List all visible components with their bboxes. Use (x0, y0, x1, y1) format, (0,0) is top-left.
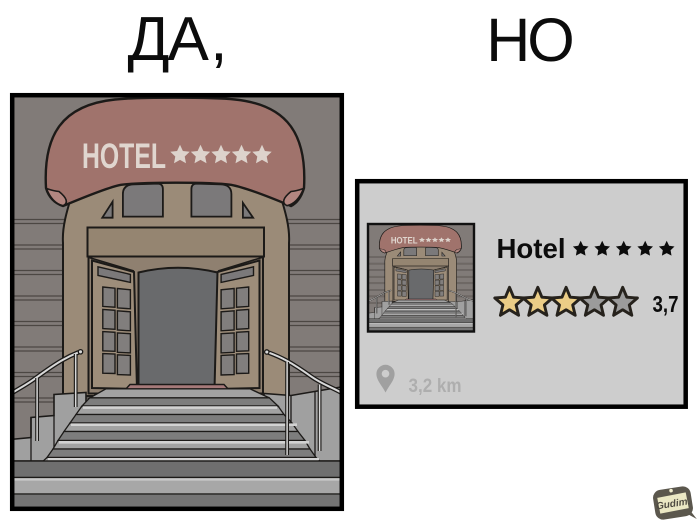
svg-text:НО: НО (486, 6, 572, 74)
svg-text:3,7: 3,7 (653, 291, 679, 317)
svg-text:ДА,: ДА, (127, 5, 225, 74)
svg-text:3,2 km: 3,2 km (409, 375, 462, 397)
svg-text:Hotel: Hotel (497, 233, 566, 264)
